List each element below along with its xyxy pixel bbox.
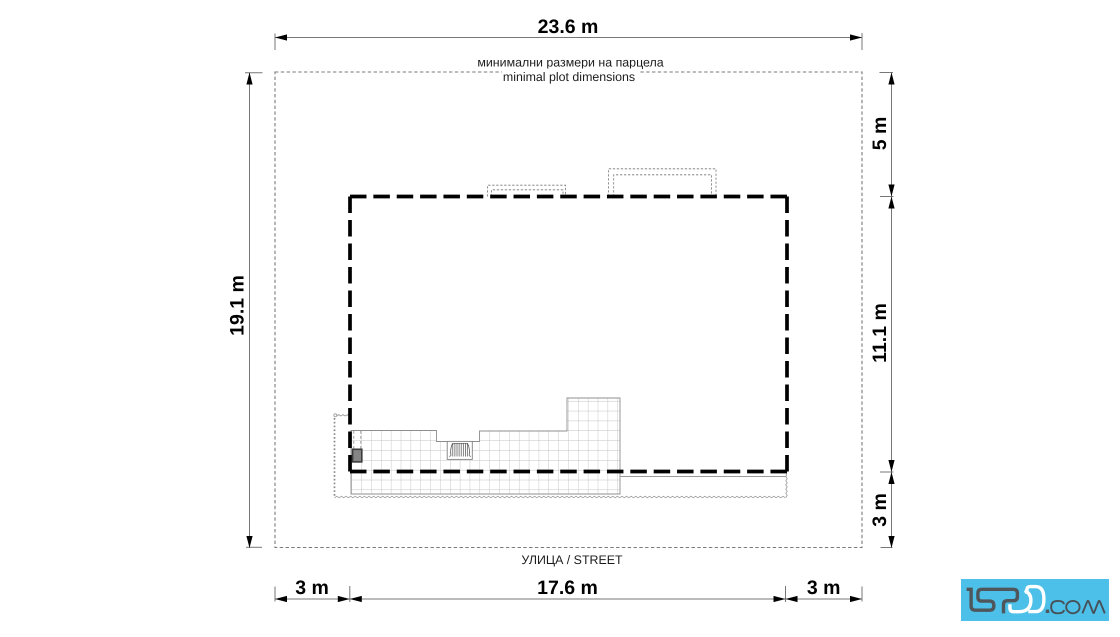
svg-text:3 m: 3 m: [807, 577, 841, 599]
svg-text:17.6 m: 17.6 m: [537, 577, 598, 599]
svg-text:11.1 m: 11.1 m: [869, 303, 891, 363]
svg-text:3 m: 3 m: [295, 577, 329, 599]
svg-text:23.6 m: 23.6 m: [538, 16, 599, 38]
svg-text:УЛИЦА / STREET: УЛИЦА / STREET: [521, 553, 623, 567]
svg-text:5 m: 5 m: [869, 117, 891, 151]
svg-text:minimal plot dimensions: minimal plot dimensions: [503, 70, 635, 84]
svg-text:19.1 m: 19.1 m: [227, 275, 249, 336]
svg-text:минимални размери на парцела: минимални размери на парцела: [477, 56, 663, 70]
svg-text:3 m: 3 m: [869, 493, 891, 527]
